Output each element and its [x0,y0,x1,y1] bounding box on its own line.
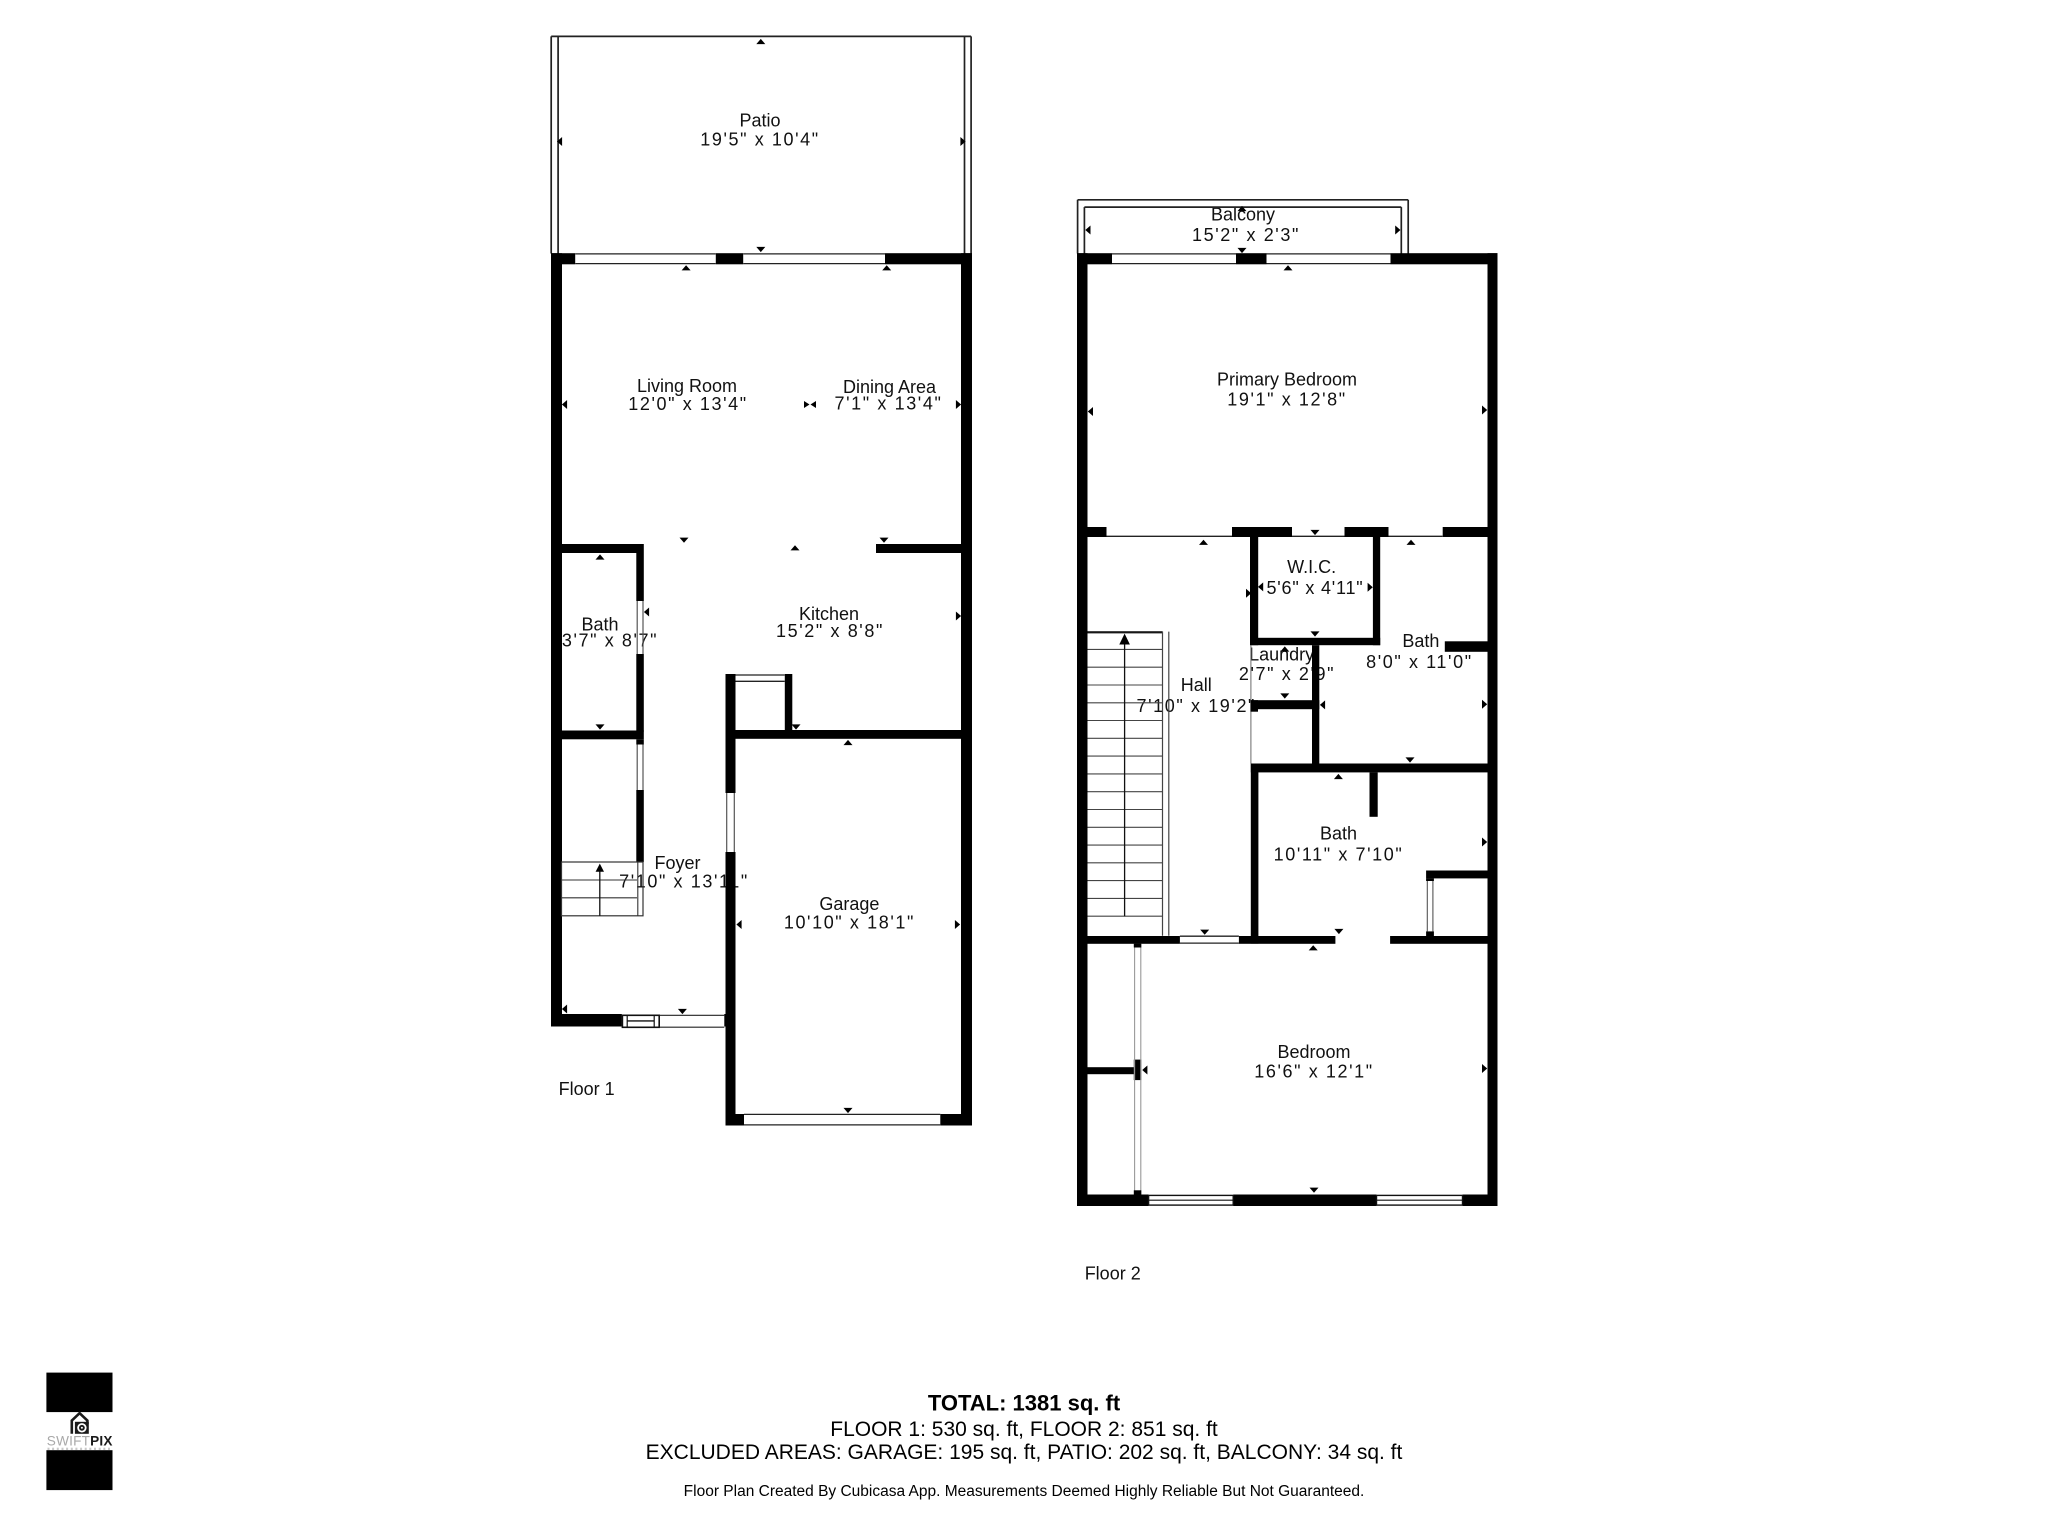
svg-text:Bath: Bath [1402,631,1439,651]
svg-text:Living Room: Living Room [637,376,737,396]
svg-text:TOTAL: 1381 sq. ft: TOTAL: 1381 sq. ft [928,1390,1121,1415]
svg-text:Patio: Patio [739,110,780,130]
svg-text:Bedroom: Bedroom [1277,1042,1350,1062]
svg-text:EXCLUDED AREAS: GARAGE: 195 sq: EXCLUDED AREAS: GARAGE: 195 sq. ft, PATI… [646,1441,1403,1464]
svg-text:15'2" x 2'3": 15'2" x 2'3" [1192,225,1300,245]
svg-text:10'10" x 18'1": 10'10" x 18'1" [784,912,915,932]
svg-text:10'11" x 7'10": 10'11" x 7'10" [1274,844,1404,864]
svg-text:W.I.C.: W.I.C. [1287,557,1336,577]
svg-text:2'7" x 2'9": 2'7" x 2'9" [1239,664,1335,684]
svg-text:5'6" x 4'11": 5'6" x 4'11" [1267,578,1364,598]
svg-text:Garage: Garage [819,894,879,914]
svg-text:Foyer: Foyer [654,853,700,873]
svg-text:15'2" x 8'8": 15'2" x 8'8" [776,621,884,641]
svg-text:Bath: Bath [1320,823,1357,843]
svg-text:19'1" x 12'8": 19'1" x 12'8" [1227,389,1347,409]
svg-text:19'5" x 10'4": 19'5" x 10'4" [700,129,820,149]
svg-text:Laundry: Laundry [1249,644,1314,664]
svg-text:12'0" x 13'4": 12'0" x 13'4" [628,394,748,414]
svg-text:FLOOR 1: 530 sq. ft, FLOOR 2:: FLOOR 1: 530 sq. ft, FLOOR 2: 851 sq. ft [830,1418,1218,1441]
svg-text:Floor Plan Created By Cubicasa: Floor Plan Created By Cubicasa App. Meas… [684,1483,1365,1500]
svg-text:7'10" x 19'2": 7'10" x 19'2" [1137,696,1257,716]
svg-text:Floor 1: Floor 1 [559,1079,615,1099]
svg-text:3'7" x 8'7": 3'7" x 8'7" [562,630,658,650]
svg-text:Primary Bedroom: Primary Bedroom [1217,369,1357,389]
svg-text:7'1" x 13'4": 7'1" x 13'4" [835,393,943,413]
svg-text:SWIFTPIX: SWIFTPIX [47,1434,113,1449]
svg-text:Hall: Hall [1181,675,1212,695]
svg-text:16'6" x 12'1": 16'6" x 12'1" [1254,1061,1374,1081]
svg-text:8'0" x 11'0": 8'0" x 11'0" [1366,652,1473,672]
svg-text:Floor 2: Floor 2 [1085,1263,1141,1283]
